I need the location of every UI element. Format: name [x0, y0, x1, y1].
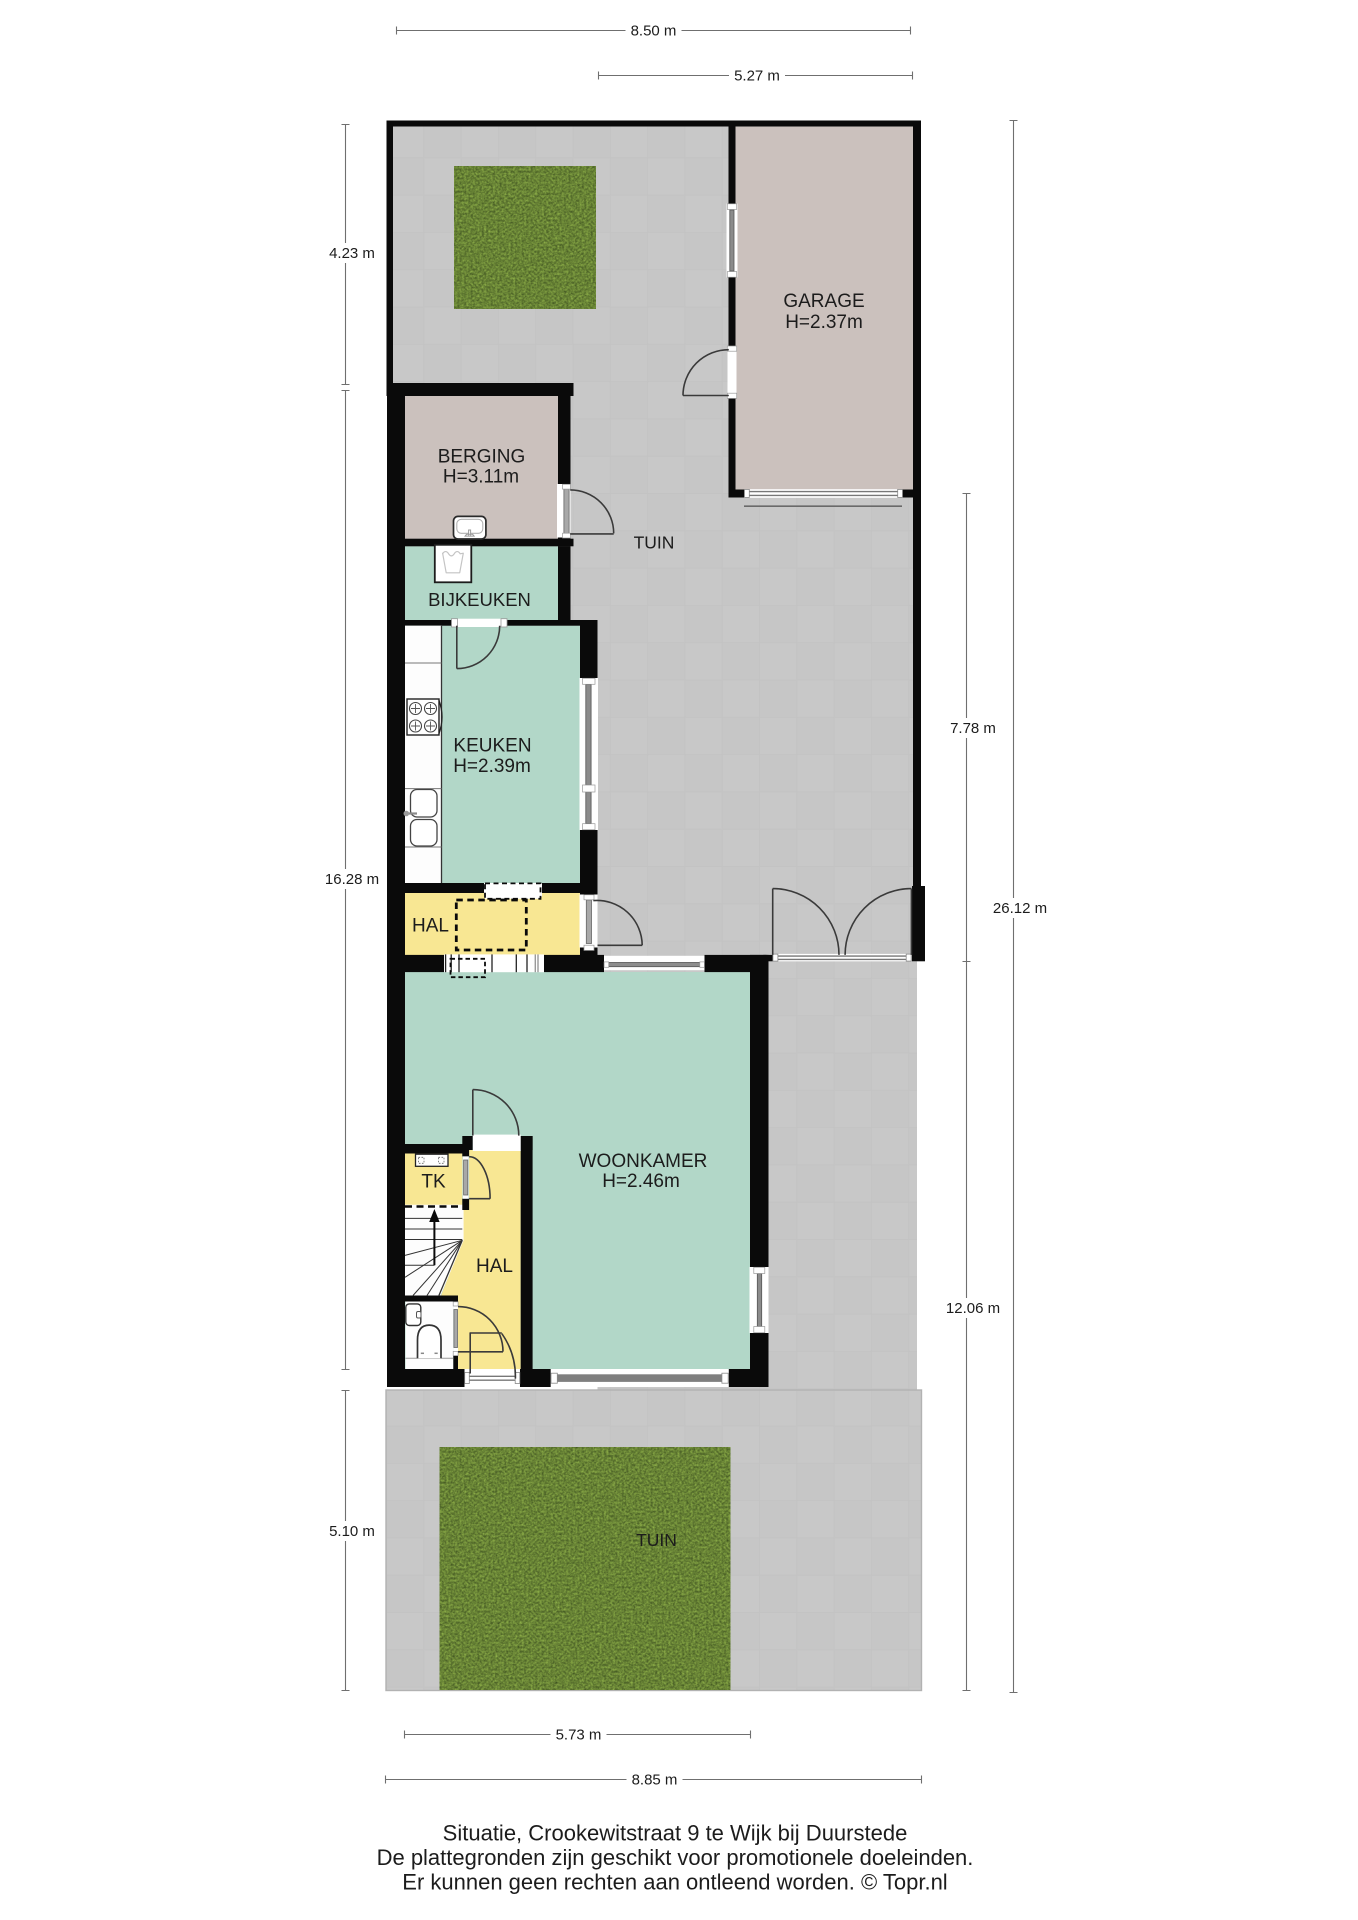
- svg-text:8.50 m: 8.50 m: [631, 23, 677, 40]
- svg-text:16.28 m: 16.28 m: [325, 871, 379, 888]
- svg-text:12.06 m: 12.06 m: [946, 1300, 1000, 1317]
- svg-text:BIJKEUKEN: BIJKEUKEN: [428, 589, 531, 610]
- svg-text:TK: TK: [421, 1172, 446, 1193]
- svg-text:Situatie, Crookewitstraat 9 te: Situatie, Crookewitstraat 9 te Wijk bij …: [443, 1821, 908, 1846]
- svg-text:8.85 m: 8.85 m: [632, 1772, 678, 1789]
- svg-text:WOONKAMER: WOONKAMER: [579, 1151, 708, 1172]
- svg-text:KEUKEN: KEUKEN: [453, 736, 531, 757]
- svg-text:5.73 m: 5.73 m: [556, 1727, 602, 1744]
- svg-text:5.27 m: 5.27 m: [734, 68, 780, 85]
- svg-text:7.78 m: 7.78 m: [950, 720, 996, 737]
- svg-text:5.10 m: 5.10 m: [329, 1523, 375, 1540]
- svg-text:HAL: HAL: [476, 1256, 513, 1277]
- svg-text:De plattegronden zijn geschikt: De plattegronden zijn geschikt voor prom…: [377, 1845, 974, 1870]
- svg-text:GARAGE: GARAGE: [783, 291, 864, 312]
- svg-text:Er kunnen geen rechten aan ont: Er kunnen geen rechten aan ontleend word…: [402, 1870, 947, 1895]
- svg-text:4.23 m: 4.23 m: [329, 245, 375, 262]
- svg-text:H=2.37m: H=2.37m: [785, 312, 863, 333]
- svg-text:H=3.11m: H=3.11m: [443, 467, 519, 488]
- svg-text:HAL: HAL: [412, 916, 449, 937]
- svg-text:H=2.39m: H=2.39m: [453, 756, 531, 777]
- svg-text:H=2.46m: H=2.46m: [602, 1171, 680, 1192]
- svg-text:BERGING: BERGING: [438, 447, 526, 468]
- svg-text:26.12 m: 26.12 m: [993, 900, 1047, 917]
- svg-text:TUIN: TUIN: [636, 1530, 677, 1550]
- svg-text:TUIN: TUIN: [634, 533, 675, 553]
